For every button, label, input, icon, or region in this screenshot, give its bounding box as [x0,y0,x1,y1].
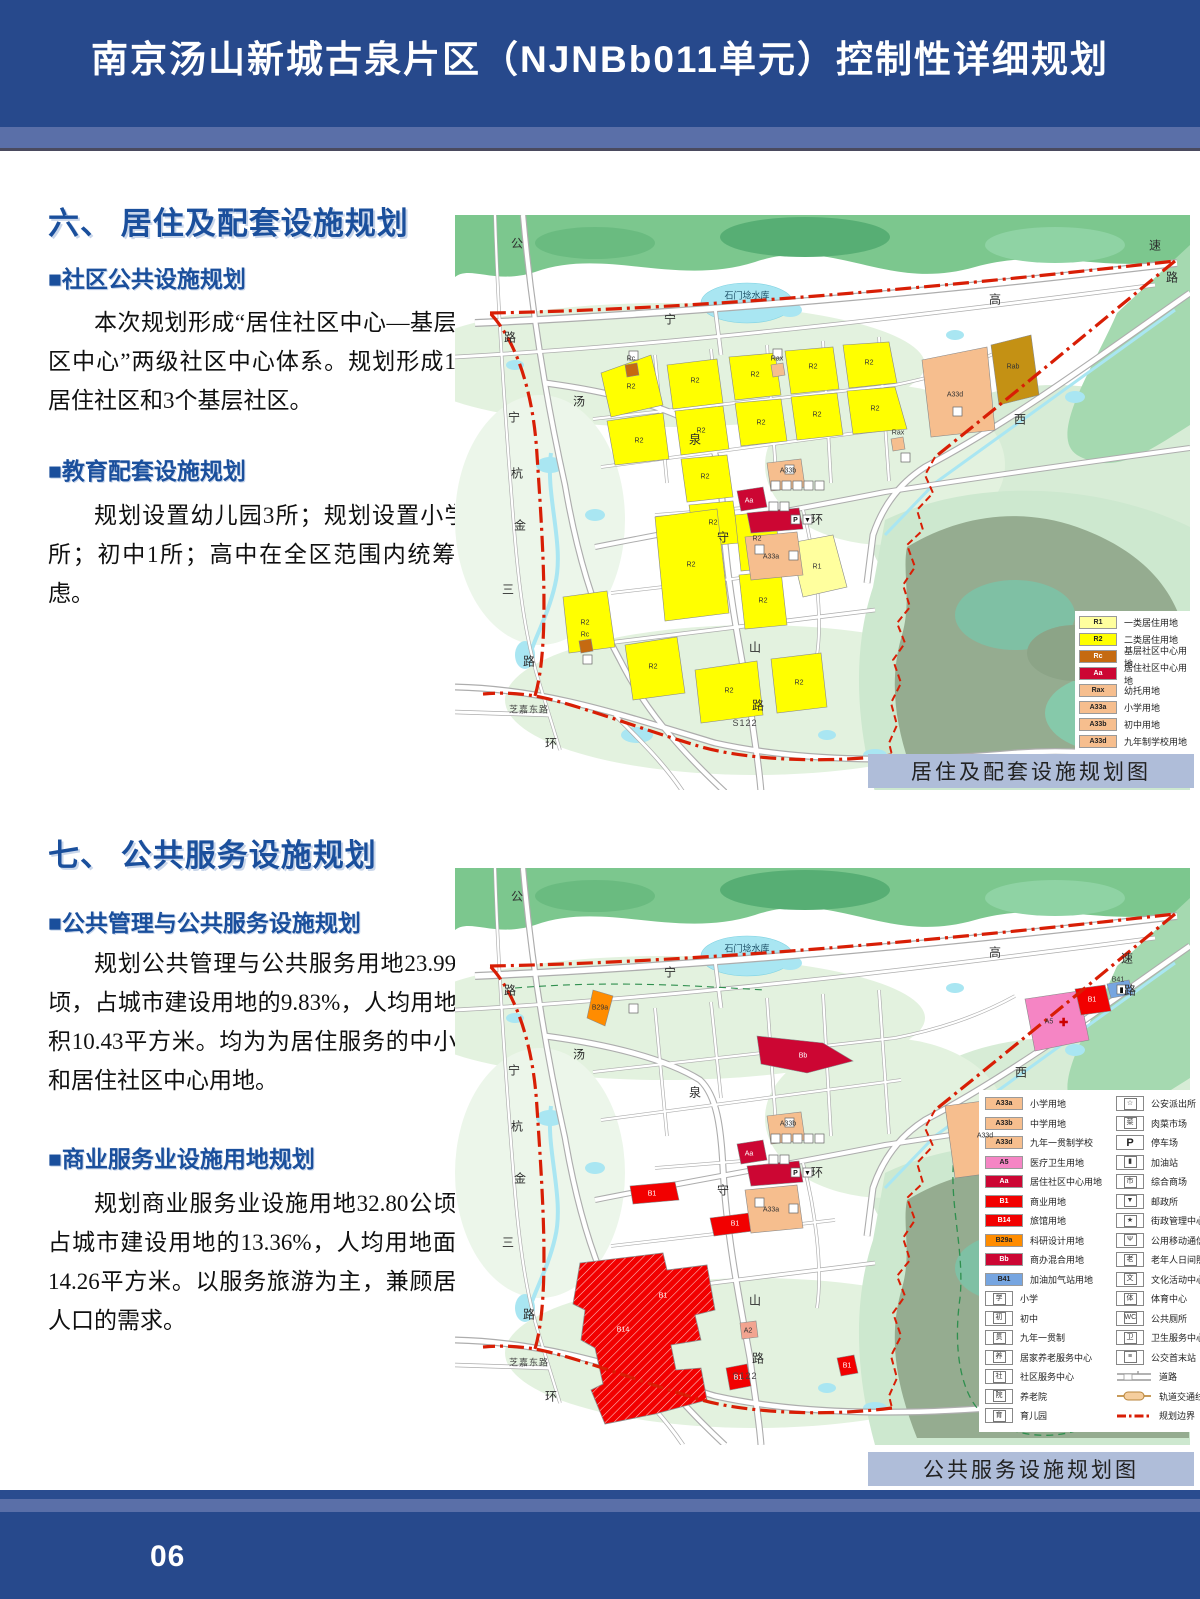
facility-icon: 卫 [1116,1330,1144,1345]
facility-icon: 体 [1116,1291,1144,1306]
map1-legend: R1一类居住用地R2二类居住用地Rc基层社区中心用地Aa居住社区中心用地Rax幼… [1075,611,1193,759]
legend-label: 九年一贯制学校 [1030,1136,1093,1149]
legend-item: Aa居住社区中心用地 [1079,665,1193,682]
legend-swatch-A33a: A33a [1079,701,1117,714]
legend-label: 小学 [1020,1292,1038,1305]
section6-sub2-title: ■教育配套设施规划 [48,452,246,486]
legend-label: 公共厕所 [1151,1312,1187,1325]
map2-caption: 公共服务设施规划图 [868,1452,1194,1486]
legend-item: A33b中学用地 [985,1114,1102,1134]
legend-item: 市综合商场 [1116,1172,1200,1192]
section6-sub2-body: 规划设置幼儿园3所；规划设置小学1所；初中1所；高中在全区范围内统筹考虑。 [48,496,480,613]
legend-line-item: 轨道交通线路及站点 [1116,1387,1200,1407]
legend-item: 文文化活动中心 [1116,1270,1200,1290]
facility-icon: ☆ [1116,1096,1144,1111]
svg-text:✚: ✚ [1059,1017,1068,1029]
legend-item: B29a科研设计用地 [985,1231,1102,1251]
facility-icon: 初 [985,1311,1013,1326]
legend-swatch-A5: A5 [985,1156,1023,1169]
legend-item: ▼邮政所 [1116,1192,1200,1212]
public-services-map: ✚P▼▮ A33a小学用地A33b中学用地A33d九年一贯制学校A5医疗卫生用地… [455,868,1190,1445]
legend-label: 公交首末站 [1151,1351,1196,1364]
legend-swatch-Aa: Aa [985,1175,1023,1188]
legend-item: 菜肉菜市场 [1116,1114,1200,1134]
footer-accent-band [0,1499,1200,1512]
legend-swatch-Rc: Rc [1079,650,1117,663]
section7-sub2-body: 规划商业服务业设施用地32.80公顷，占城市建设用地的13.36%，人均用地面积… [48,1184,480,1340]
facility-icon: 育 [985,1408,1013,1423]
legend-item: B41加油加气站用地 [985,1270,1102,1290]
footer-rule [0,1490,1200,1499]
page-title: 南京汤山新城古泉片区（NJNBb011单元）控制性详细规划 [0,0,1200,120]
svg-text:P: P [793,1170,798,1177]
legend-swatch-A33b: A33b [985,1117,1023,1130]
facility-icon: 养 [985,1350,1013,1365]
legend-label: 九年一贯制 [1020,1331,1065,1344]
legend-item: 院养老院 [985,1387,1102,1407]
page-footer: 06 [0,1512,1200,1599]
legend-item: A33a小学用地 [985,1094,1102,1114]
legend-swatch-Rax: Rax [1079,684,1117,697]
facility-icon: ★ [1116,1213,1144,1228]
legend-label: 街政管理中心 [1151,1214,1200,1227]
facility-icon: 老 [1116,1252,1144,1267]
legend-item: WC公共厕所 [1116,1309,1200,1329]
legend-swatch-R1: R1 [1079,616,1117,629]
legend-label: 体育中心 [1151,1292,1187,1305]
legend-label: 初中 [1020,1312,1038,1325]
legend-item: Aa居住社区中心用地 [985,1172,1102,1192]
legend-label: 停车场 [1151,1136,1178,1149]
legend-item: ≡公交首末站 [1116,1348,1200,1368]
facility-icon: 文 [1116,1272,1144,1287]
legend-label: 规划边界 [1159,1409,1195,1422]
legend-label: 卫生服务中心 [1151,1331,1200,1344]
legend-label: 医疗卫生用地 [1030,1156,1084,1169]
legend-item: Ψ公用移动通信基站 [1116,1231,1200,1251]
legend-label: 科研设计用地 [1030,1234,1084,1247]
legend2-right-column: ☆公安派出所菜肉菜市场P停车场▮加油站市综合商场▼邮政所★街政管理中心Ψ公用移动… [1116,1094,1200,1432]
svg-text:▼: ▼ [804,1170,811,1177]
svg-text:▮: ▮ [1120,987,1124,994]
facility-icon: 学 [985,1291,1013,1306]
section7-heading: 七、 公共服务设施规划 [48,830,377,875]
legend-item: P停车场 [1116,1133,1200,1153]
facility-icon: ≡ [1116,1350,1144,1365]
legend-swatch-B14: B14 [985,1214,1023,1227]
legend-swatch-B29a: B29a [985,1234,1023,1247]
legend-label: 综合商场 [1151,1175,1187,1188]
document-page: 南京汤山新城古泉片区（NJNBb011单元）控制性详细规划 六、 居住及配套设施… [0,0,1200,1599]
rail-symbol [1116,1389,1152,1403]
legend-item: 学小学 [985,1289,1102,1309]
legend-label: 道路 [1159,1370,1177,1383]
map2-legend: A33a小学用地A33b中学用地A33d九年一贯制学校A5医疗卫生用地Aa居住社… [979,1090,1200,1432]
legend-item: ▮加油站 [1116,1153,1200,1173]
section7-sub1-title: ■公共管理与公共服务设施规划 [48,904,361,938]
legend-label: 初中用地 [1124,718,1160,731]
legend-label: 邮政所 [1151,1195,1178,1208]
legend-line-item: 道路 [1116,1367,1200,1387]
legend-item: 养居家养老服务中心 [985,1348,1102,1368]
facility-icon: 院 [985,1389,1013,1404]
legend-item: B1商业用地 [985,1192,1102,1212]
map1-caption: 居住及配套设施规划图 [868,754,1194,788]
legend-swatch-A33b: A33b [1079,718,1117,731]
legend-swatch-A33d: A33d [985,1136,1023,1149]
legend-swatch-R2: R2 [1079,633,1117,646]
legend-label: 旅馆用地 [1030,1214,1066,1227]
legend-item: A5医疗卫生用地 [985,1153,1102,1173]
legend-item: A33a小学用地 [1079,699,1193,716]
facility-icon: 菜 [1116,1116,1144,1131]
legend-label: 社区服务中心 [1020,1370,1074,1383]
legend-item: R1一类居住用地 [1079,614,1193,631]
legend-label: 小学用地 [1030,1097,1066,1110]
boundary-symbol [1116,1409,1152,1423]
section6-sub1-title: ■社区公共设施规划 [48,260,246,294]
section7-sub1-body: 规划公共管理与公共服务用地23.99公顷，占城市建设用地的9.83%，人均用地面… [48,944,480,1100]
legend-label: 养老院 [1020,1390,1047,1403]
legend-label: 一类居住用地 [1124,616,1178,629]
legend-label: 居住社区中心用地 [1124,661,1193,687]
legend-swatch-A33d: A33d [1079,735,1117,748]
legend-label: 育儿园 [1020,1409,1047,1422]
facility-icon: ▮ [1116,1155,1144,1170]
legend-item: ☆公安派出所 [1116,1094,1200,1114]
legend-label: 文化活动中心 [1151,1273,1200,1286]
legend-label: 商办混合用地 [1030,1253,1084,1266]
section6-heading: 六、 居住及配套设施规划 [48,198,409,243]
legend-item: A33b初中用地 [1079,716,1193,733]
legend-item: 老老年人日间照料中心 [1116,1250,1200,1270]
svg-text:▼: ▼ [804,517,811,524]
facility-icon: ▼ [1116,1194,1144,1209]
legend-item: 初初中 [985,1309,1102,1329]
legend-item: ★街政管理中心 [1116,1211,1200,1231]
legend-item: 贯九年一贯制 [985,1328,1102,1348]
legend-label: 轨道交通线路及站点 [1159,1390,1200,1403]
legend-item: A33d九年制学校用地 [1079,733,1193,750]
residential-facilities-map: P▼ R1一类居住用地R2二类居住用地Rc基层社区中心用地Aa居住社区中心用地R… [455,215,1190,790]
legend-label: 幼托用地 [1124,684,1160,697]
legend-line-item: 规划边界 [1116,1406,1200,1426]
legend-label: 中学用地 [1030,1117,1066,1130]
legend2-left-column: A33a小学用地A33b中学用地A33d九年一贯制学校A5医疗卫生用地Aa居住社… [985,1094,1102,1432]
facility-icon: 贯 [985,1330,1013,1345]
legend-item: 育育儿园 [985,1406,1102,1426]
facility-icon: P [1116,1135,1144,1150]
legend-item: B14旅馆用地 [985,1211,1102,1231]
page-header: 南京汤山新城古泉片区（NJNBb011单元）控制性详细规划 [0,0,1200,127]
legend-item: 体体育中心 [1116,1289,1200,1309]
road-symbol [1116,1370,1152,1384]
section7-sub2-title: ■商业服务业设施用地规划 [48,1140,315,1174]
legend-label: 居住社区中心用地 [1030,1175,1102,1188]
legend-item: A33d九年一贯制学校 [985,1133,1102,1153]
facility-icon: WC [1116,1311,1144,1326]
legend-label: 公安派出所 [1151,1097,1196,1110]
legend-label: 肉菜市场 [1151,1117,1187,1130]
legend-label: 小学用地 [1124,701,1160,714]
facility-icon: 市 [1116,1174,1144,1189]
legend-swatch-Aa: Aa [1079,667,1117,680]
section6-sub1-body: 本次规划形成“居住社区中心—基层社区中心”两级社区中心体系。规划形成1个居住社区… [48,303,480,420]
facility-icon: 社 [985,1369,1013,1384]
header-accent-band [0,127,1200,151]
facility-icon: Ψ [1116,1233,1144,1248]
legend-label: 加油站 [1151,1156,1178,1169]
legend-label: 居家养老服务中心 [1020,1351,1092,1364]
legend-swatch-B1: B1 [985,1195,1023,1208]
legend-label: 公用移动通信基站 [1151,1234,1200,1247]
legend-label: 九年制学校用地 [1124,735,1187,748]
legend-swatch-A33a: A33a [985,1097,1023,1110]
legend-item: 社社区服务中心 [985,1367,1102,1387]
legend-swatch-B41: B41 [985,1273,1023,1286]
legend-item: Bb商办混合用地 [985,1250,1102,1270]
legend-label: 老年人日间照料中心 [1151,1253,1200,1266]
page-number: 06 [150,1540,185,1574]
svg-text:P: P [793,517,798,524]
legend-swatch-Bb: Bb [985,1253,1023,1266]
legend-item: 卫卫生服务中心 [1116,1328,1200,1348]
legend-label: 商业用地 [1030,1195,1066,1208]
legend-label: 加油加气站用地 [1030,1273,1093,1286]
